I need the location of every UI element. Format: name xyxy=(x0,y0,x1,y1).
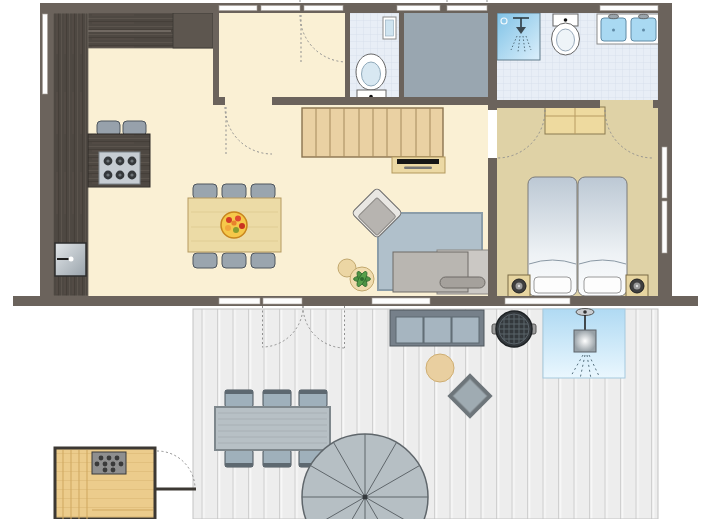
terrace xyxy=(193,309,658,519)
wall-center-lower xyxy=(488,158,497,296)
wall-bottom xyxy=(13,296,698,306)
faucet-icon xyxy=(639,14,649,18)
window xyxy=(447,6,487,11)
window xyxy=(219,6,257,11)
dining-chair xyxy=(222,253,246,268)
bedside-lamp xyxy=(630,279,644,293)
window xyxy=(600,6,658,11)
dining-set xyxy=(188,184,281,268)
drain-dot xyxy=(612,29,615,32)
sofa-cushion xyxy=(424,317,451,343)
chair-back xyxy=(299,390,327,394)
outdoor-dining-set xyxy=(215,390,330,467)
wall-center-upper xyxy=(488,13,497,110)
tv-stand xyxy=(404,167,432,170)
window xyxy=(397,6,440,11)
chair-back xyxy=(263,390,291,394)
mirror-glass xyxy=(386,20,394,36)
shower-head-dot xyxy=(583,310,587,314)
wall-hall-toilet xyxy=(345,13,350,105)
side-table-with-plant xyxy=(350,267,374,291)
window-right-wall xyxy=(662,147,667,198)
round-wooden-stool xyxy=(426,354,454,382)
window xyxy=(261,6,300,11)
toilet-bowl-inner xyxy=(557,29,575,51)
dining-chair xyxy=(251,184,275,199)
wall-bathroom-bottom-a xyxy=(497,100,600,108)
window-bottom-wall xyxy=(372,298,430,304)
kitchen-appliance-block xyxy=(173,13,213,48)
dining-chair xyxy=(193,253,217,268)
floorplan-canvas xyxy=(0,0,713,519)
flush-button xyxy=(564,18,568,22)
sofa-cushion xyxy=(452,317,479,343)
window-bottom-wall xyxy=(505,298,570,304)
window-right-wall xyxy=(662,201,667,253)
terrace-door-panel xyxy=(219,298,260,304)
shower-tray xyxy=(574,330,596,352)
dining-chair xyxy=(222,184,246,199)
wall-top xyxy=(40,3,672,13)
terrace-door-panel xyxy=(263,298,302,304)
double-washbasin xyxy=(597,14,659,44)
bolster-cushion xyxy=(440,277,485,288)
dining-chair xyxy=(251,253,275,268)
bedside-lamp xyxy=(512,279,526,293)
faucet-dot xyxy=(69,257,74,262)
double-bed xyxy=(528,177,627,296)
parasol-pole xyxy=(363,495,368,500)
chair-back xyxy=(263,463,291,467)
dining-chair xyxy=(193,184,217,199)
utility-room-floor xyxy=(404,13,488,97)
wall-bathroom-bottom-b xyxy=(653,100,658,108)
sauna xyxy=(55,448,196,519)
window xyxy=(304,6,343,11)
wall-hall-bottom-a xyxy=(213,97,225,105)
drain-dot xyxy=(642,29,645,32)
sofa-cushion xyxy=(396,317,423,343)
outdoor-sofa xyxy=(390,310,484,346)
chair-back xyxy=(225,390,253,394)
pillow xyxy=(584,277,621,293)
shower-cabin xyxy=(497,13,540,60)
fruit-bowl xyxy=(221,212,247,238)
window-left-wall xyxy=(43,14,48,94)
sauna-door-arc xyxy=(157,451,195,489)
wall-hall-bottom-b xyxy=(272,97,490,105)
outdoor-shower xyxy=(543,309,625,380)
pillow xyxy=(534,277,571,293)
wall-toilet-utility xyxy=(399,13,404,105)
toilet-bowl-inner xyxy=(362,62,381,86)
wall-hall-left xyxy=(213,13,219,105)
television xyxy=(397,159,439,164)
chair-back xyxy=(225,463,253,467)
floorplan-svg xyxy=(0,0,713,519)
faucet-icon xyxy=(609,14,619,18)
sofa xyxy=(393,250,490,294)
